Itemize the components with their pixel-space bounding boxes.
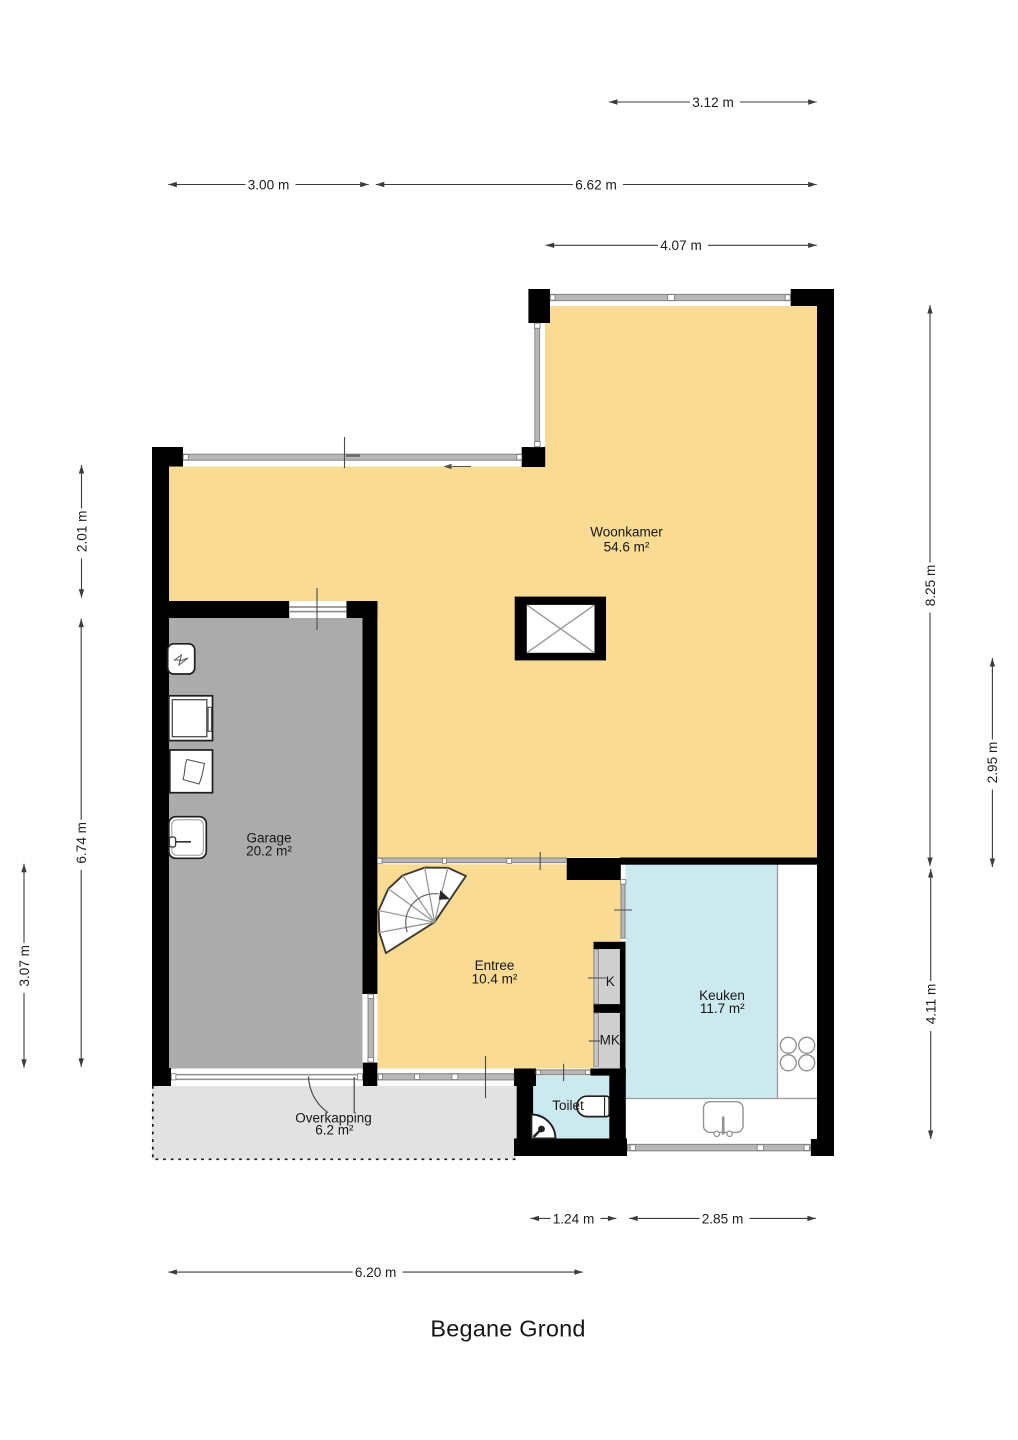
svg-text:54.6 m²: 54.6 m² xyxy=(604,539,650,554)
svg-text:2.85 m: 2.85 m xyxy=(702,1211,744,1226)
svg-text:4.11 m: 4.11 m xyxy=(924,984,939,1025)
svg-text:11.7 m²: 11.7 m² xyxy=(700,1001,745,1016)
svg-text:2.01 m: 2.01 m xyxy=(74,511,89,553)
svg-text:6.74 m: 6.74 m xyxy=(74,822,89,864)
svg-text:3.07 m: 3.07 m xyxy=(17,945,32,987)
svg-text:6.2 m²: 6.2 m² xyxy=(315,1123,354,1138)
svg-text:3.12 m: 3.12 m xyxy=(692,95,734,110)
svg-text:Toilet: Toilet xyxy=(552,1098,584,1113)
svg-text:2.95 m: 2.95 m xyxy=(985,742,1000,784)
svg-text:Woonkamer: Woonkamer xyxy=(590,525,663,540)
svg-text:4.07 m: 4.07 m xyxy=(660,238,702,253)
svg-text:20.2 m²: 20.2 m² xyxy=(246,844,292,859)
svg-text:1.24 m: 1.24 m xyxy=(553,1211,595,1226)
svg-text:8.25 m: 8.25 m xyxy=(923,565,938,607)
svg-text:6.20 m: 6.20 m xyxy=(355,1265,397,1280)
svg-text:10.4 m²: 10.4 m² xyxy=(472,972,518,987)
svg-text:K: K xyxy=(606,974,615,989)
svg-text:3.00 m: 3.00 m xyxy=(248,177,290,192)
svg-text:MK: MK xyxy=(600,1033,620,1048)
svg-text:Begane Grond: Begane Grond xyxy=(430,1316,585,1342)
svg-text:6.62 m: 6.62 m xyxy=(575,177,617,192)
